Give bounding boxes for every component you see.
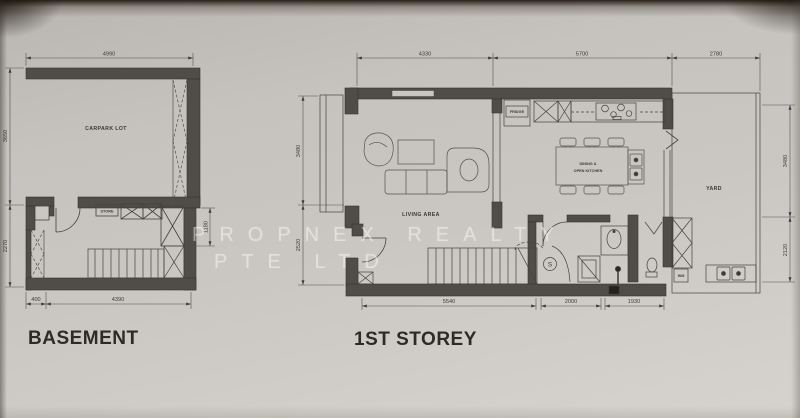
top-wall-window (392, 91, 434, 97)
bay-window (320, 95, 343, 212)
chaise (447, 148, 489, 192)
dim-right-upper: 3480 (783, 155, 789, 167)
sofa (385, 170, 447, 194)
washing-machine-label: WM (678, 274, 685, 278)
basement-lift-shaft (173, 80, 187, 205)
dim-top-yard: 2780 (710, 52, 722, 58)
kitchen-counter (571, 101, 665, 122)
basement-stairs (88, 246, 184, 278)
yard-label: YARD (706, 186, 722, 192)
yard-cabinet (672, 218, 692, 268)
watermark-line2: PTE LTD (214, 249, 568, 276)
dim-bottom-right: 1930 (628, 299, 640, 305)
wc-compartment (645, 222, 662, 277)
basin (601, 226, 628, 255)
living-kitchen-partition (493, 113, 500, 202)
floor-plan-sheet: 4990 3650 2270 1180 400 4390 CARPARK LOT… (0, 0, 800, 418)
yard (672, 93, 760, 293)
basement-void-box (161, 206, 184, 246)
basement-dim-top: 4990 (103, 52, 115, 58)
basement-door (56, 208, 80, 232)
dim-bottom-left: 5540 (443, 299, 455, 305)
coffee-table (398, 140, 434, 164)
basement-dim-bottom-small: 400 (31, 297, 40, 303)
watermark-line1: PROPNEX REALTY (192, 224, 568, 246)
dining-table (556, 147, 628, 185)
shower-tray (578, 256, 600, 282)
basement-dim-left-lower: 2270 (3, 240, 9, 252)
dining-label-line2: OPEN KITCHEN (574, 169, 603, 173)
floor-gully (615, 266, 620, 284)
living-area-label: LIVING AREA (402, 212, 440, 218)
basement-dim-bottom-large: 4390 (112, 297, 124, 303)
yard-sink (706, 265, 756, 282)
first-storey-title: 1ST STOREY (354, 329, 477, 351)
basement-corner-room (35, 206, 49, 220)
dim-top-living: 4330 (419, 52, 431, 58)
toilet (647, 258, 657, 272)
island-sink (628, 150, 644, 184)
carpark-label: CARPARK LOT (85, 126, 127, 132)
armchair (364, 133, 393, 166)
living-furniture (364, 133, 489, 194)
dim-bottom-mid: 2000 (565, 299, 577, 305)
store-label: STORE (100, 210, 113, 214)
kitchen-fixtures (504, 100, 665, 126)
dim-left-upper: 3480 (296, 145, 302, 157)
dining-label-line1: DINING & (579, 162, 596, 166)
dim-top-kitchen: 5700 (576, 52, 588, 58)
dining-set (556, 138, 644, 194)
basement-left-shaft (31, 230, 44, 278)
dim-right-lower: 2120 (783, 244, 789, 256)
floor-plan-drawing: 4990 3650 2270 1180 400 4390 CARPARK LOT… (0, 0, 800, 418)
fridge-label: FRIDGE (510, 110, 525, 114)
basement-dim-left-upper: 3650 (3, 130, 9, 142)
basement-dimensions (5, 53, 215, 309)
hob (596, 103, 636, 120)
watermark: PROPNEX REALTY PTE LTD (192, 222, 568, 276)
basement-walls (26, 68, 200, 290)
basement-plan: 4990 3650 2270 1180 400 4390 CARPARK LOT… (3, 52, 215, 310)
yard-glazing (664, 150, 670, 217)
basement-title: BASEMENT (28, 328, 139, 350)
wc-door (645, 222, 662, 234)
